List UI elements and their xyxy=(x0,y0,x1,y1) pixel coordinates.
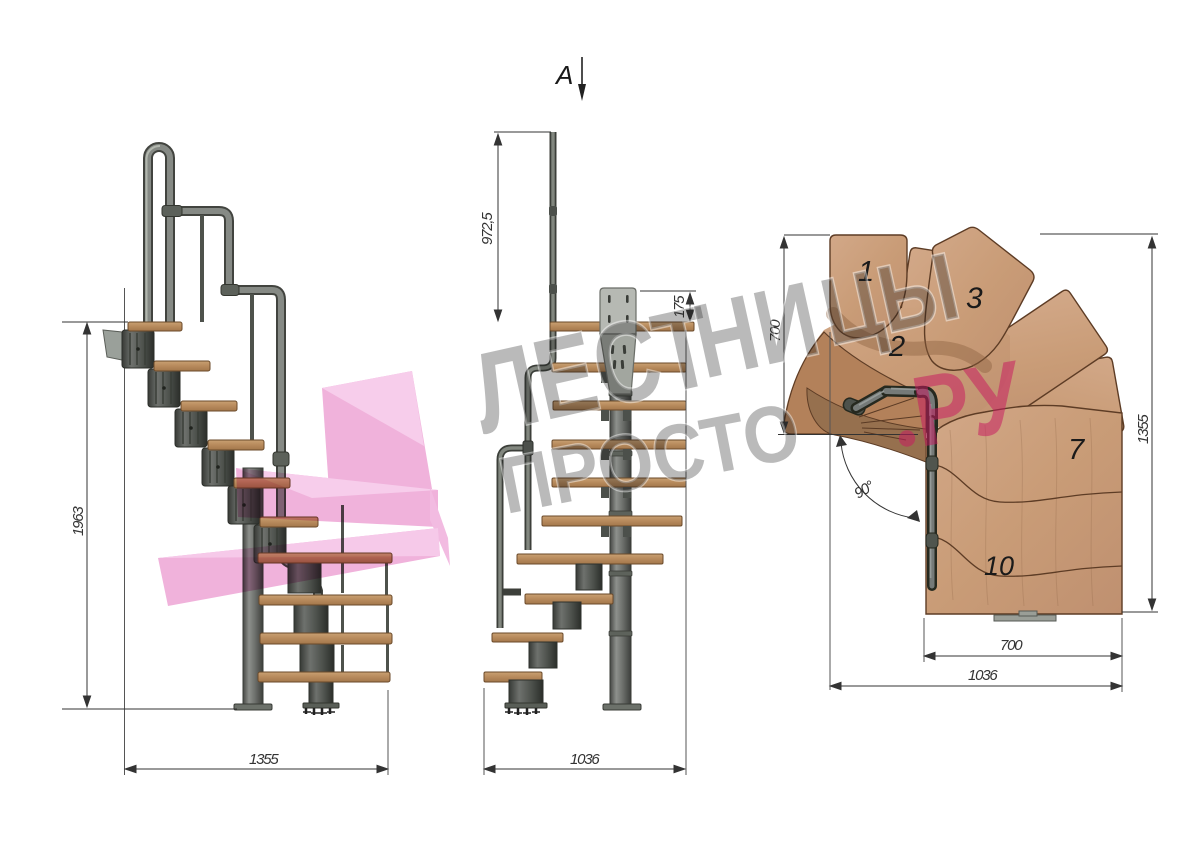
svg-text:700: 700 xyxy=(1000,637,1023,654)
svg-text:1355: 1355 xyxy=(1135,414,1152,444)
svg-text:A: A xyxy=(554,60,573,90)
svg-text:1963: 1963 xyxy=(70,506,87,536)
svg-text:7: 7 xyxy=(1068,434,1086,466)
svg-text:10: 10 xyxy=(984,551,1014,581)
svg-text:1355: 1355 xyxy=(249,751,279,768)
svg-text:972,5: 972,5 xyxy=(479,212,496,245)
svg-text:3: 3 xyxy=(966,282,983,315)
svg-text:РУ: РУ xyxy=(904,339,1031,468)
svg-text:1036: 1036 xyxy=(968,667,998,684)
svg-text:1036: 1036 xyxy=(570,751,600,768)
